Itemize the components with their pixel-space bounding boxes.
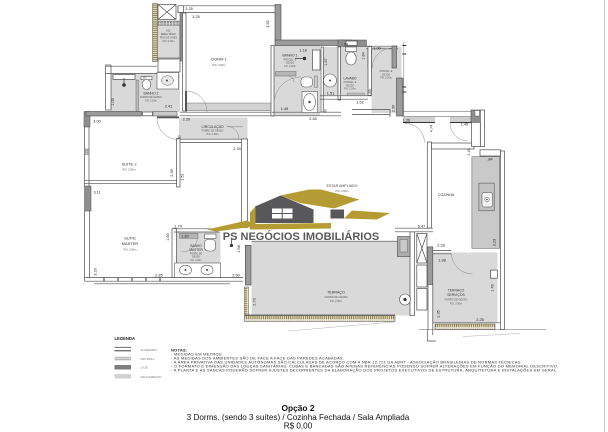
svg-text:DORM 1: DORM 1: [211, 57, 227, 62]
svg-text:P.D. 2.50m: P.D. 2.50m: [330, 300, 342, 303]
svg-text:1.60: 1.60: [166, 233, 170, 240]
svg-text:P.D. 2.50m: P.D. 2.50m: [380, 77, 392, 80]
svg-text:ALVENARIA: ALVENARIA: [141, 348, 158, 352]
svg-text:1.74: 1.74: [174, 224, 181, 228]
svg-text:3.25: 3.25: [192, 15, 199, 19]
svg-text:94: 94: [344, 42, 348, 46]
svg-text:6.47: 6.47: [418, 225, 425, 229]
svg-text:1.85: 1.85: [368, 89, 372, 96]
svg-text:P.D. 2.20m: P.D. 2.20m: [344, 88, 356, 91]
svg-text:2.20: 2.20: [183, 118, 190, 122]
svg-text:2.50: 2.50: [232, 274, 239, 278]
svg-text:1.84: 1.84: [362, 52, 366, 59]
svg-text:4.74: 4.74: [430, 125, 434, 132]
svg-text:CIRCULAÇÃO: CIRCULAÇÃO: [201, 124, 224, 129]
svg-text:2.34: 2.34: [233, 147, 240, 151]
svg-text:3.00: 3.00: [93, 120, 100, 124]
svg-text:3.29: 3.29: [94, 268, 98, 275]
svg-text:P.D. 2.20m: P.D. 2.20m: [207, 133, 219, 136]
svg-text:3.11: 3.11: [93, 191, 100, 195]
svg-text:1.57: 1.57: [324, 58, 328, 65]
svg-text:2.30: 2.30: [392, 105, 396, 112]
svg-text:R$ 0,00: R$ 0,00: [284, 422, 313, 431]
svg-text:BANHO 1: BANHO 1: [283, 54, 298, 58]
svg-text:- A PLANTA E AS SANCAS PODERÃO: - A PLANTA E AS SANCAS PODERÃO SOFRER AJ…: [171, 367, 558, 372]
svg-text:MASTER: MASTER: [189, 248, 203, 252]
svg-text:.84: .84: [487, 158, 492, 162]
svg-text:FORRO DE GESSO: FORRO DE GESSO: [325, 296, 348, 299]
svg-text:2.28: 2.28: [437, 243, 444, 247]
svg-text:P.D. 2.20m: P.D. 2.20m: [190, 260, 201, 262]
svg-text:Opção 2: Opção 2: [281, 403, 314, 413]
svg-text:FECHAMENTO: FECHAMENTO: [141, 375, 163, 379]
svg-text:1.45: 1.45: [281, 107, 288, 111]
svg-text:COZINHA: COZINHA: [438, 193, 455, 197]
svg-text:PS NEGÓCIOS IMOBILIÁRIOS: PS NEGÓCIOS IMOBILIÁRIOS: [223, 230, 379, 243]
svg-text:BANHO 2: BANHO 2: [144, 91, 159, 95]
svg-text:1.26: 1.26: [403, 119, 410, 123]
svg-text:1.51: 1.51: [181, 173, 185, 180]
svg-text:1.18: 1.18: [299, 49, 306, 53]
svg-text:LAJE: LAJE: [141, 366, 148, 370]
svg-text:FORRO DE GESSO: FORRO DE GESSO: [445, 299, 468, 302]
svg-text:GESSO: GESSO: [192, 257, 200, 259]
svg-text:P.D. 2.20m: P.D. 2.20m: [284, 65, 296, 68]
svg-text:90: 90: [178, 135, 182, 139]
svg-text:SERVIÇOS: SERVIÇOS: [447, 293, 465, 297]
svg-text:P.D. 2.50m: P.D. 2.50m: [450, 302, 462, 305]
svg-text:SUITE 2: SUITE 2: [121, 162, 137, 167]
svg-text:MASTER: MASTER: [122, 241, 139, 246]
svg-text:WC: WC: [143, 77, 147, 80]
svg-text:1.52: 1.52: [356, 101, 363, 105]
svg-text:P.D. 2.20m: P.D. 2.20m: [145, 99, 157, 102]
svg-text:TERRAÇO: TERRAÇO: [327, 291, 345, 295]
svg-text:3.23: 3.23: [493, 239, 497, 246]
svg-text:1.49: 1.49: [491, 284, 495, 291]
svg-text:1.80: 1.80: [181, 235, 188, 239]
svg-text:2.35: 2.35: [437, 310, 441, 317]
svg-text:2.25: 2.25: [476, 318, 483, 322]
svg-text:1.05: 1.05: [111, 98, 115, 105]
svg-text:FORRO DE: FORRO DE: [190, 254, 203, 256]
svg-text:P.D. 2.50m: P.D. 2.50m: [123, 248, 137, 252]
svg-text:P.D. 2.50m: P.D. 2.50m: [122, 168, 136, 172]
svg-text:1.00: 1.00: [373, 47, 380, 51]
svg-text:1.45: 1.45: [467, 148, 471, 155]
svg-text:P.D. 2.50m: P.D. 2.50m: [335, 189, 349, 193]
svg-text:1.51: 1.51: [327, 91, 334, 95]
svg-text:P.D. 2.30m: P.D. 2.30m: [163, 40, 175, 43]
svg-text:1.98: 1.98: [438, 259, 445, 263]
svg-text:2.85: 2.85: [155, 274, 162, 278]
svg-text:LAVABO: LAVABO: [343, 77, 356, 81]
svg-text:P.D. 2.50m: P.D. 2.50m: [212, 63, 226, 67]
svg-text:LEGENDA: LEGENDA: [115, 336, 135, 341]
svg-text:DRYWALL: DRYWALL: [141, 357, 156, 361]
svg-text:A.D.: A.D.: [166, 29, 171, 33]
svg-text:SUITE: SUITE: [124, 236, 136, 241]
svg-text:90: 90: [324, 109, 328, 113]
svg-text:2.25: 2.25: [185, 7, 192, 11]
svg-text:2.39: 2.39: [170, 169, 174, 176]
svg-text:1.45: 1.45: [461, 122, 468, 126]
svg-text:3.52: 3.52: [266, 20, 270, 27]
svg-text:2.41: 2.41: [165, 105, 172, 109]
svg-text:1.58: 1.58: [237, 245, 241, 252]
svg-text:2.65: 2.65: [309, 117, 316, 121]
svg-text:2.70: 2.70: [253, 298, 257, 305]
svg-text:ESTAR AMPLIADO: ESTAR AMPLIADO: [326, 184, 357, 188]
